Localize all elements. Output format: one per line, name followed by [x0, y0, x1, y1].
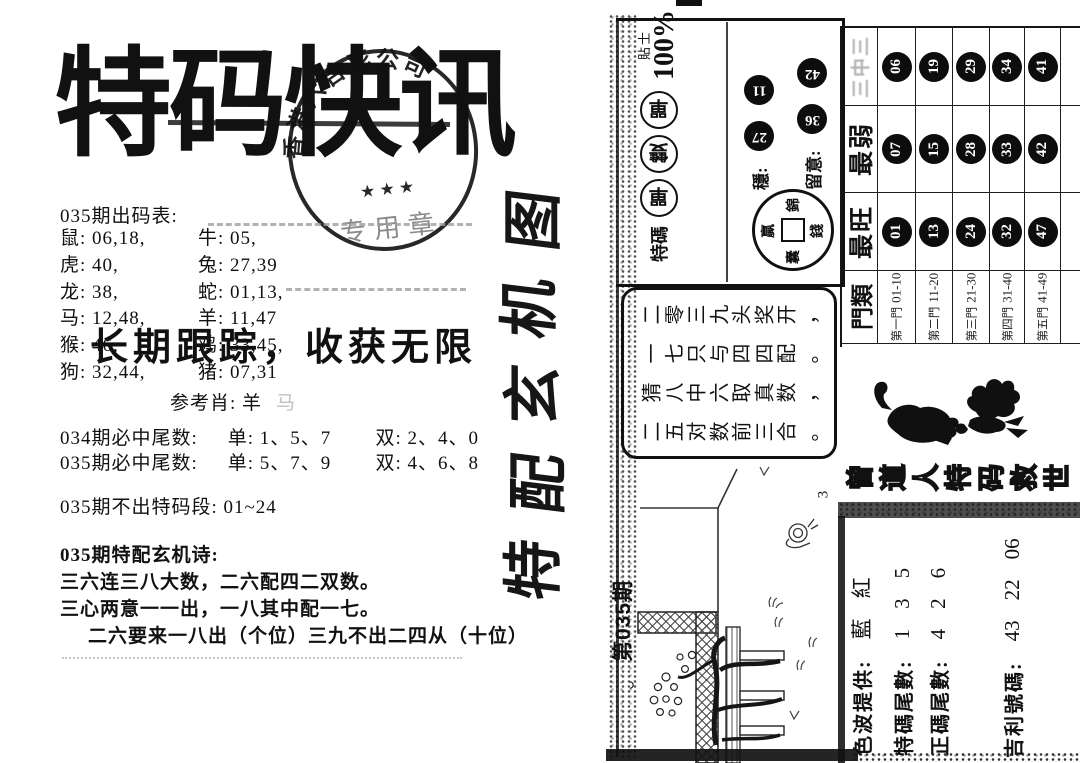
- table-cell: 47: [1025, 193, 1061, 271]
- ball-number: 33: [999, 142, 1016, 157]
- coin-icon: 錦 贏 錢 囊: [752, 189, 834, 271]
- zodiac-cell: 羊: 11,47: [198, 308, 277, 329]
- zodiac-cell: 马: 12,48,: [60, 306, 198, 333]
- table-row: 狗: 32,44,猪: 07,31: [60, 360, 284, 387]
- number-ball: 42: [797, 58, 827, 88]
- coin-char: 錢: [807, 224, 827, 238]
- table-cell: 07: [878, 106, 916, 193]
- reference-ghost-text: 马: [276, 393, 296, 414]
- header-text: 門類: [843, 284, 877, 330]
- header-text: 三中三: [846, 35, 873, 98]
- table-cell: 41: [1025, 28, 1061, 106]
- tail-label: 035期必中尾数:: [60, 448, 222, 475]
- table-cell: 01: [878, 193, 916, 271]
- info-value: 22: [1000, 579, 1025, 600]
- number-ball: 47: [1028, 217, 1058, 247]
- ball-number: 15: [926, 142, 943, 157]
- company-stamp: 香港六合彩公司 ★ ★ ★ 专用章: [273, 35, 494, 265]
- gate-cell: [1061, 271, 1080, 344]
- bottom-edge-noise: [852, 752, 1080, 761]
- special-code-tip-line: 特碼 單 雙 單 貼士 100%: [638, 10, 679, 262]
- info-value: 紅: [846, 577, 876, 598]
- table-cell: 13: [916, 193, 953, 271]
- poem-line: 三心两意一一出，一八其中配一七。: [60, 594, 380, 621]
- info-value: 43: [1000, 620, 1025, 641]
- badge-text: 單: [649, 184, 669, 213]
- gate-name: 第五門: [1038, 307, 1050, 342]
- tip-label: 特碼: [646, 226, 672, 262]
- tail-odd: 单: 5、7、9: [228, 448, 370, 475]
- gate-range: 31-40: [999, 273, 1014, 303]
- ball-number: 36: [805, 111, 820, 128]
- number-ball: 24: [956, 217, 986, 247]
- table-row: 龙: 38,蛇: 01,13,: [60, 280, 284, 307]
- watch-numbers-line: 留意: 36 42: [797, 58, 827, 190]
- table-cell: 32: [990, 193, 1025, 271]
- table-row: 马: 12,48,羊: 11,47: [60, 306, 284, 333]
- scanned-lottery-flyer: 特码快讯 香港六合彩公司 ★ ★ ★ 专用章 长期跟踪，收获无限 035期出码表…: [0, 0, 1080, 763]
- tail-odd: 单: 1、5、7: [228, 423, 370, 450]
- header-text: 最弱: [842, 122, 878, 176]
- info-label: 吉利號碼:: [998, 661, 1027, 758]
- header-text: 最旺: [842, 204, 878, 258]
- gate-cell: 第二門11-20: [916, 271, 953, 344]
- stable-numbers-line: 穩: 27 11: [744, 75, 774, 190]
- zodiac-cell: 鼠: 06,18,: [60, 226, 198, 253]
- gate-name: 第四門: [1002, 307, 1014, 342]
- room-corner-lines: [640, 469, 737, 508]
- codes-table-heading: 035期出码表:: [60, 201, 178, 228]
- info-value: 3: [890, 598, 915, 609]
- info-value: 5: [890, 568, 915, 579]
- table-cell: 42: [1025, 106, 1061, 193]
- ball-number: 19: [926, 59, 943, 74]
- gate-range: 41-49: [1035, 273, 1050, 303]
- animal-drawings: [858, 368, 1038, 463]
- number-ball: 33: [992, 134, 1022, 164]
- brush-calligraphy-title: 特配玄机图: [492, 190, 576, 600]
- zodiac-cell: 猪: 07,31: [198, 362, 278, 383]
- poem-heading: 035期特配玄机诗:: [60, 540, 219, 567]
- outlined-slogan: 曾道人特码救世: [845, 456, 1069, 498]
- watch-label: 留意:: [800, 150, 825, 190]
- ball-number: 27: [752, 128, 767, 145]
- ball-number: 01: [888, 224, 905, 239]
- table-cell: [1061, 106, 1080, 193]
- header-cell: 最弱: [842, 106, 878, 193]
- ball-number: 13: [926, 224, 943, 239]
- coin-char: 贏: [758, 224, 778, 238]
- gate-name: 第三門: [966, 307, 978, 342]
- ball-number: 07: [888, 142, 905, 157]
- info-label: 色波提供:: [847, 659, 876, 756]
- ball-number: 34: [999, 59, 1016, 74]
- number-ball: 42: [1028, 134, 1058, 164]
- tail-even: 双: 4、6、8: [376, 453, 480, 474]
- figure-number-mark: 3: [815, 491, 832, 499]
- table-cell: [1061, 28, 1080, 106]
- gate-cell: 第三門21-30: [953, 271, 990, 344]
- ball-number: 32: [999, 224, 1016, 239]
- zodiac-cell: 龙: 38,: [60, 280, 198, 307]
- zodiac-cell: 鸡: 33,45,: [198, 335, 284, 356]
- badge-text: 單: [649, 96, 669, 125]
- ball-number: 29: [963, 59, 980, 74]
- number-ball: 06: [882, 52, 912, 82]
- number-ball: 27: [744, 121, 774, 151]
- stamp-stars-icon: ★ ★ ★: [359, 177, 415, 202]
- scan-band-noise: [838, 502, 1080, 518]
- zodiac-cell: 蛇: 01,13,: [198, 282, 284, 303]
- zodiac-code-table: 鼠: 06,18,牛: 05, 虎: 40,兔: 27,39 龙: 38,蛇: …: [60, 226, 284, 387]
- mystery-poem-box: 二零三九头奖开， 一七只与四四配。 猜八中六取真数， 二五对数前三合。: [621, 287, 837, 459]
- reference-zodiac: 参考肖: 羊马: [170, 388, 296, 415]
- ball-number: 41: [1034, 59, 1051, 74]
- number-ball: 29: [956, 52, 986, 82]
- ball-number: 24: [963, 224, 980, 239]
- bird-mark: [760, 467, 769, 475]
- header-cell: 最旺: [842, 193, 878, 271]
- tiger-drawing: [874, 382, 958, 445]
- tail-label: 034期必中尾数:: [60, 423, 222, 450]
- special-tail-line: 特碼尾數: 1 3 5: [888, 568, 917, 756]
- number-ball: 01: [882, 217, 912, 247]
- coin-hole: [781, 218, 805, 242]
- snail-drawing: [786, 519, 818, 548]
- number-ball: 36: [797, 104, 827, 134]
- stable-label: 穩:: [747, 167, 772, 190]
- scan-dash-artifact: [286, 288, 466, 291]
- gate-number-table: 三中三 06 19 29 34 41 最弱 07 15 28 33 42 最旺 …: [840, 26, 1080, 347]
- coin-char: 錦: [783, 198, 803, 212]
- info-label: 正碼尾數:: [924, 659, 953, 756]
- double-circle-badge: 雙: [640, 135, 678, 173]
- zodiac-cell: 猴: 46,: [60, 333, 198, 360]
- single-circle-badge: 單: [640, 179, 678, 217]
- number-ball: 28: [956, 134, 986, 164]
- table-cell: 34: [990, 28, 1025, 106]
- reference-text: 参考肖: 羊: [170, 393, 262, 414]
- normal-tail-line: 正碼尾數: 4 2 6: [924, 568, 953, 756]
- number-ball: 34: [992, 52, 1022, 82]
- ball-number: 42: [1034, 142, 1051, 157]
- number-ball: 07: [882, 134, 912, 164]
- info-value: 6: [926, 568, 951, 579]
- post: [726, 627, 740, 763]
- table-row: 虎: 40,兔: 27,39: [60, 253, 284, 280]
- tail-even: 双: 2、4、0: [376, 428, 480, 449]
- info-value: 4: [926, 629, 951, 640]
- bottom-edge-bar: [606, 749, 858, 761]
- stamp-center-text: 专用章: [339, 208, 443, 248]
- tip-percent: 100%: [651, 10, 679, 80]
- panel-divider: [726, 22, 728, 282]
- tail-numbers-row: 034期必中尾数: 单: 1、5、7 双: 2、4、0: [60, 423, 479, 450]
- gate-range: 11-20: [926, 273, 941, 303]
- info-label: 特碼尾數:: [888, 659, 917, 756]
- header-cell: 門類: [842, 271, 878, 344]
- zodiac-cell: 虎: 40,: [60, 253, 198, 280]
- poem-line: 二六要来一八出（个位）三九不出二四从（十位）: [88, 621, 528, 648]
- ball-number: 42: [805, 65, 820, 82]
- number-ball: 32: [992, 217, 1022, 247]
- number-ball: 41: [1028, 52, 1058, 82]
- coin-char: 囊: [783, 250, 803, 264]
- table-cell: 28: [953, 106, 990, 193]
- gate-cell: 第四門31-40: [990, 271, 1025, 344]
- tip-percent-stack: 貼士 100%: [638, 10, 679, 80]
- info-value: 06: [1000, 538, 1025, 559]
- ball-number: 28: [963, 142, 980, 157]
- table-row: 鼠: 06,18,牛: 05,: [60, 226, 284, 253]
- gate-name: 第二門: [929, 307, 941, 342]
- bird-mark: [790, 711, 799, 719]
- zodiac-cell: 狗: 32,44,: [60, 360, 198, 387]
- color-wave-line: 色波提供: 藍 紅: [846, 577, 876, 756]
- poem-line: 三六连三八大数，二六配四二双数。: [60, 567, 380, 594]
- table-cell: 06: [878, 28, 916, 106]
- scan-mark: [676, 0, 702, 6]
- tail-numbers-row: 035期必中尾数: 单: 5、7、9 双: 4、6、8: [60, 448, 479, 475]
- svg-text:香港六合彩公司: 香港六合彩公司: [273, 40, 443, 162]
- number-ball: 15: [919, 134, 949, 164]
- panel-border-bar: [838, 516, 845, 763]
- badge-text: 雙: [649, 140, 669, 169]
- header-cell: 三中三: [842, 28, 878, 106]
- blossom-cluster: [630, 651, 696, 716]
- gate-range: 21-30: [963, 273, 978, 303]
- ball-number: 06: [888, 59, 905, 74]
- number-ball: 19: [919, 52, 949, 82]
- mystery-picture-drawing: [630, 455, 845, 763]
- number-ball: 11: [744, 75, 774, 105]
- table-row: 猴: 46,鸡: 33,45,: [60, 333, 284, 360]
- faint-scan-mark: [62, 657, 462, 659]
- poem-box-line: 猜八中六取真数，: [640, 378, 818, 407]
- info-value: 2: [926, 598, 951, 609]
- table-cell: 19: [916, 28, 953, 106]
- info-value: 1: [890, 629, 915, 640]
- lucky-number-line: 吉利號碼: 43 22 06: [998, 538, 1027, 758]
- table-cell: 33: [990, 106, 1025, 193]
- ball-number: 47: [1034, 224, 1051, 239]
- gate-cell: 第一門01-10: [878, 271, 916, 344]
- table-cell: 29: [953, 28, 990, 106]
- zodiac-cell: 兔: 27,39: [198, 255, 278, 276]
- table-cell: 15: [916, 106, 953, 193]
- rooster-drawing: [955, 379, 1028, 438]
- table-cell: 24: [953, 193, 990, 271]
- number-ball: 13: [919, 217, 949, 247]
- gate-cell: 第五門41-49: [1025, 271, 1061, 344]
- gate-range: 01-10: [889, 273, 904, 303]
- zodiac-cell: 牛: 05,: [198, 228, 257, 249]
- stamp-arc-text: 香港六合彩公司: [273, 40, 443, 162]
- poem-box-line: 二五对数前三合。: [640, 417, 818, 446]
- single-circle-badge: 單: [640, 91, 678, 129]
- table-cell: [1061, 193, 1080, 271]
- poem-box-line: 二零三九头奖开，: [640, 300, 818, 329]
- fence-rail: [740, 651, 784, 660]
- ball-number: 11: [752, 82, 766, 99]
- info-value: 藍: [846, 618, 876, 639]
- poem-box-line: 一七只与四四配。: [640, 339, 818, 368]
- gate-name: 第一門: [892, 307, 904, 342]
- excluded-segment: 035期不出特码段: 01~24: [60, 492, 277, 519]
